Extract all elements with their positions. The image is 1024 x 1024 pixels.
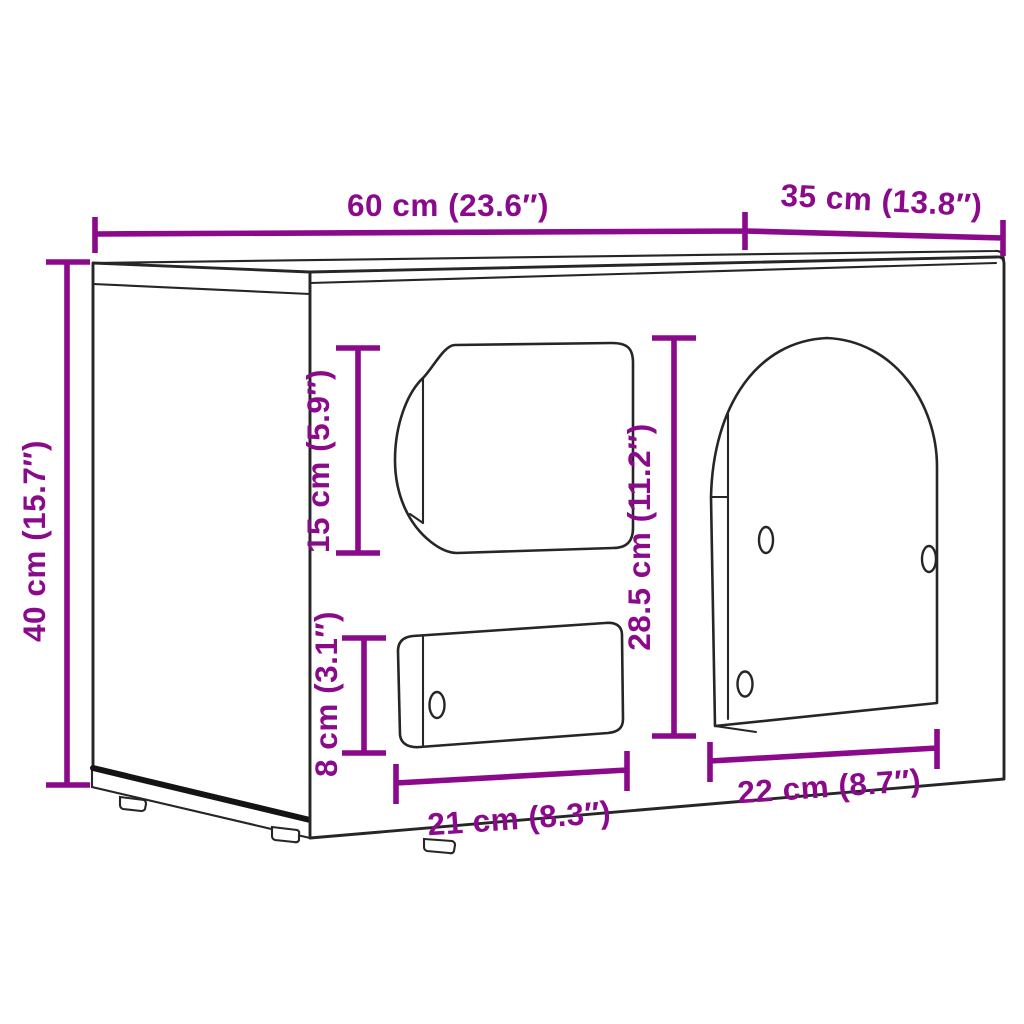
dim-entry-opening-height-label: 15 cm (5.9″) (300, 369, 336, 553)
cabinet-drawing (92, 251, 1004, 853)
dim-overall-height: 40 cm (15.7″) (16, 262, 90, 785)
entry-opening (395, 343, 633, 553)
dim-door-height-label: 28.5 cm (11.2″) (621, 423, 657, 650)
dim-overall-width-label: 60 cm (23.6″) (347, 187, 549, 223)
dim-overall-height-label: 40 cm (15.7″) (16, 440, 52, 642)
dim-overall-width: 60 cm (23.6″) (95, 187, 745, 253)
cabinet-foot-left (120, 797, 146, 811)
dim-overall-depth-label: 35 cm (13.8″) (780, 177, 984, 224)
dim-overall-height-line (46, 262, 90, 785)
cabinet-foot-middle (272, 827, 299, 842)
slot-handle-hole (430, 692, 445, 718)
door-hole-lower-left (738, 672, 753, 697)
page-root: 60 cm (23.6″) 35 cm (13.8″) 40 cm (15.7″… (0, 0, 1024, 1024)
dim-overall-depth: 35 cm (13.8″) (745, 177, 1003, 256)
door-hole-right (922, 546, 936, 572)
dim-slot-opening-height-label: 8 cm (3.1″) (308, 611, 344, 777)
arched-door (711, 338, 937, 726)
cabinet-left-side-panel (93, 263, 310, 820)
dimension-diagram: 60 cm (23.6″) 35 cm (13.8″) 40 cm (15.7″… (0, 0, 1024, 1024)
door-hole-upper-left (759, 527, 773, 553)
slot-opening (398, 623, 623, 747)
